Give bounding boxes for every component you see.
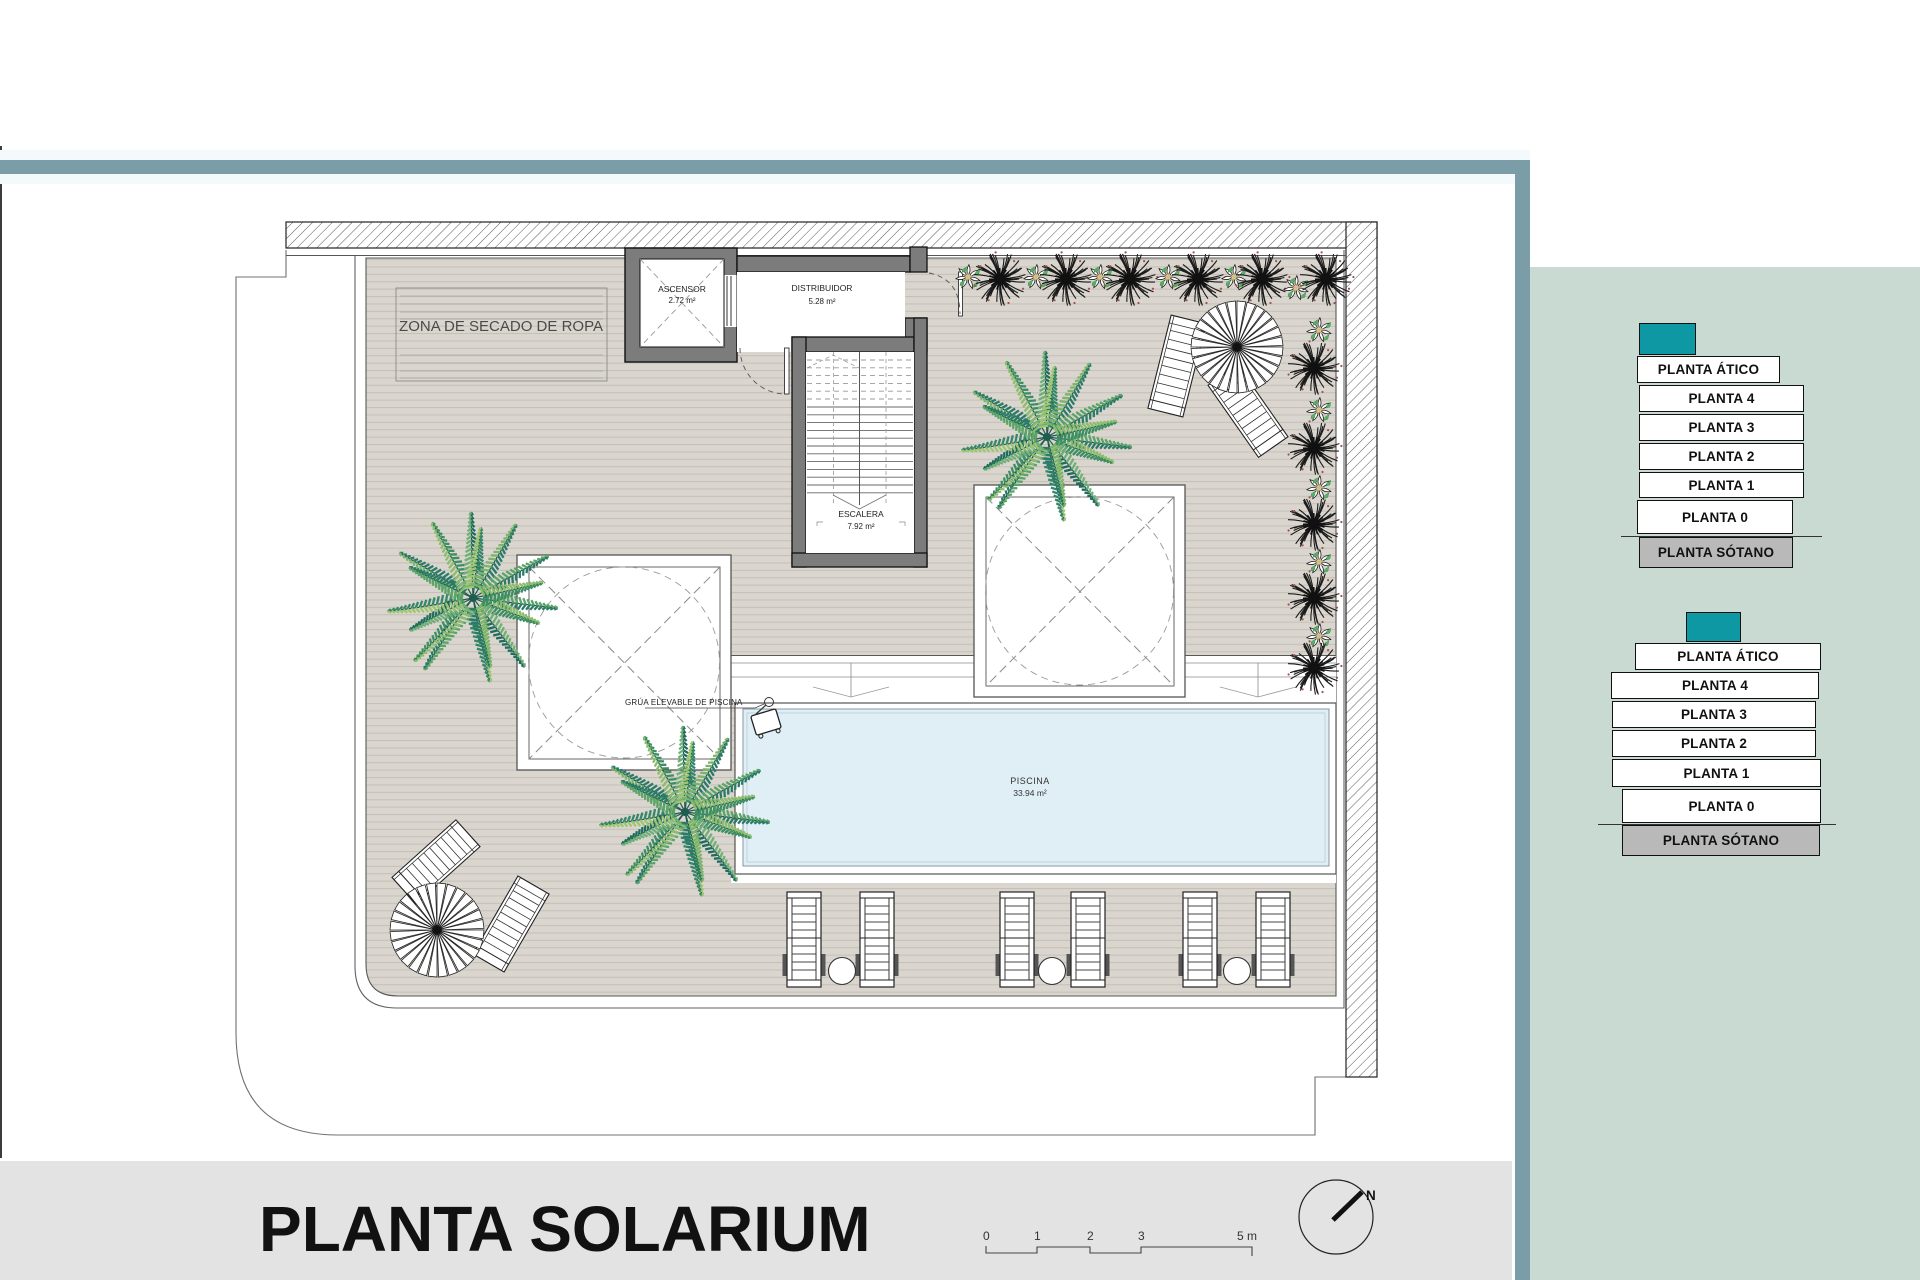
svg-text:ZONA DE SECADO DE ROPA: ZONA DE SECADO DE ROPA — [399, 318, 603, 335]
svg-text:ASCENSOR: ASCENSOR — [658, 284, 706, 294]
svg-text:2.72 m²: 2.72 m² — [668, 296, 695, 305]
svg-text:7.92 m²: 7.92 m² — [847, 522, 874, 531]
svg-text:DISTRIBUIDOR: DISTRIBUIDOR — [792, 283, 853, 293]
svg-text:5.28 m²: 5.28 m² — [808, 297, 835, 306]
svg-text:PISCINA: PISCINA — [1010, 776, 1050, 786]
svg-text:1: 1 — [1034, 1229, 1041, 1243]
svg-text:33.94 m²: 33.94 m² — [1013, 788, 1047, 798]
svg-text:3: 3 — [1138, 1229, 1145, 1243]
svg-text:5 m: 5 m — [1237, 1229, 1257, 1243]
svg-text:ESCALERA: ESCALERA — [838, 509, 884, 519]
svg-text:0: 0 — [983, 1229, 990, 1243]
svg-text:2: 2 — [1087, 1229, 1094, 1243]
svg-text:GRÚA ELEVABLE DE PISCINA: GRÚA ELEVABLE DE PISCINA — [625, 698, 743, 707]
svg-text:N: N — [1366, 1188, 1376, 1203]
